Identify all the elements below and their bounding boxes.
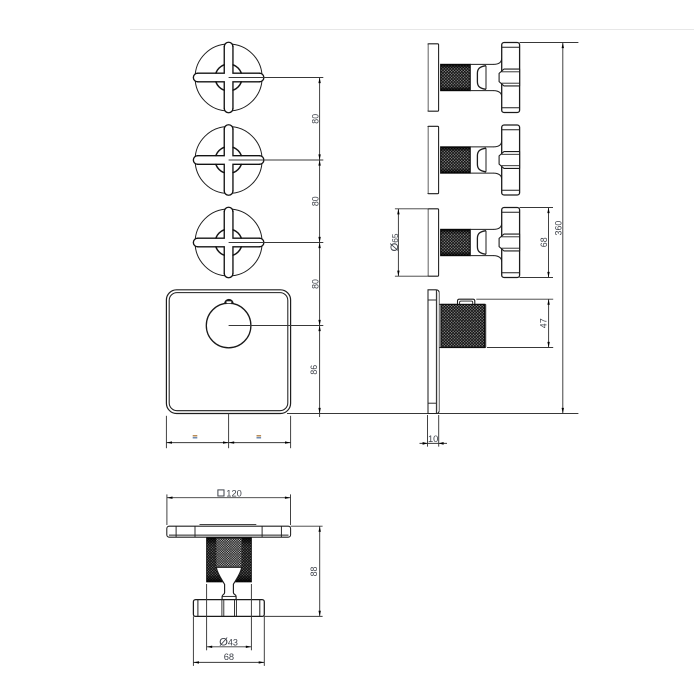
svg-text:360: 360 (554, 221, 564, 236)
svg-text:68: 68 (539, 237, 549, 247)
svg-text:80: 80 (311, 114, 321, 124)
svg-text:Ø43: Ø43 (219, 636, 238, 648)
svg-text:120: 120 (226, 488, 242, 498)
svg-text:10: 10 (428, 434, 438, 444)
svg-text:Ø65: Ø65 (389, 233, 401, 251)
svg-text:47: 47 (539, 318, 549, 328)
svg-text:86: 86 (309, 365, 319, 375)
svg-text:68: 68 (224, 652, 234, 662)
svg-text:88: 88 (309, 567, 319, 577)
svg-text:80: 80 (311, 279, 321, 289)
svg-text:80: 80 (311, 196, 321, 206)
